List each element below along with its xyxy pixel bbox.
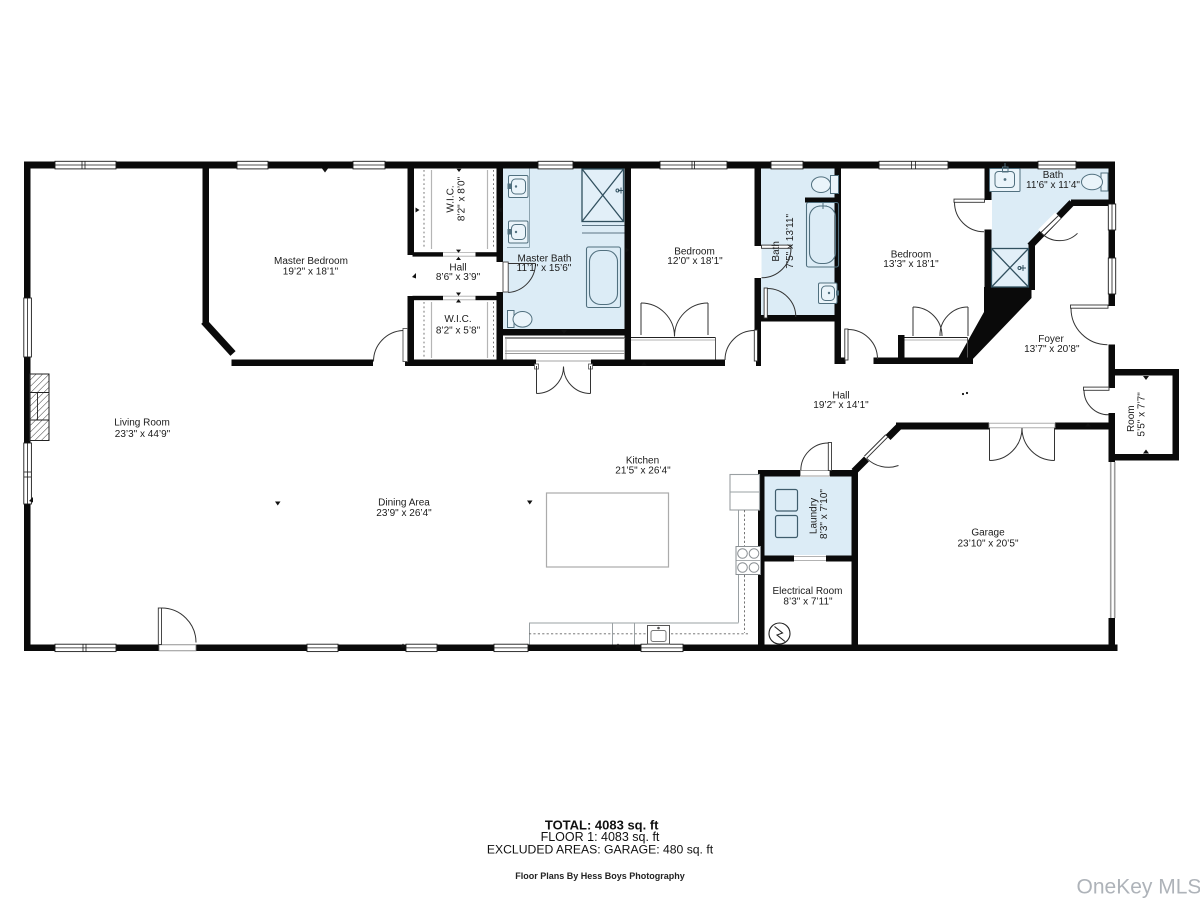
svg-text:Kitchen: Kitchen [626,455,659,466]
svg-text:EXCLUDED AREAS: GARAGE: 480 sq: EXCLUDED AREAS: GARAGE: 480 sq. ft [487,842,714,856]
svg-text:11’6" x 11’4": 11’6" x 11’4" [1026,180,1080,191]
svg-text:Floor Plans By Hess Boys Photo: Floor Plans By Hess Boys Photography [515,871,685,881]
svg-text:Living Room: Living Room [114,418,170,429]
svg-text:19’2" x 14’1": 19’2" x 14’1" [813,400,869,411]
svg-text:13’7" x 20’8": 13’7" x 20’8" [1024,344,1080,355]
svg-text:OneKey MLS: OneKey MLS [1077,876,1200,899]
svg-text:8’3" x 7’11": 8’3" x 7’11" [783,597,833,608]
svg-text:8’2" x 8’0": 8’2" x 8’0" [457,176,468,221]
svg-text:Bath: Bath [771,241,782,262]
svg-text:23’10" x 20’5": 23’10" x 20’5" [957,539,1018,550]
svg-text:W.I.C.: W.I.C. [446,185,457,212]
svg-text:Room: Room [1126,405,1137,432]
svg-text:8’2" x 5’8": 8’2" x 5’8" [436,326,481,337]
svg-text:12’0" x 18’1": 12’0" x 18’1" [667,256,723,267]
svg-text:Master Bedroom: Master Bedroom [274,256,348,267]
svg-text:11’1" x 15’6": 11’1" x 15’6" [517,263,572,274]
svg-text:23’3" x 44’9": 23’3" x 44’9" [115,429,171,440]
svg-text:7’5" x 13’11": 7’5" x 13’11" [785,213,796,268]
svg-text:8’6" x 3’9": 8’6" x 3’9" [436,272,481,283]
svg-text:Electrical Room: Electrical Room [772,586,842,597]
svg-text:Garage: Garage [971,528,1005,539]
svg-text:21’5" x 26’4": 21’5" x 26’4" [615,466,671,477]
svg-text:19’2" x 18’1": 19’2" x 18’1" [283,267,339,278]
svg-text:8’3" x 7’10": 8’3" x 7’10" [819,489,830,539]
svg-text:23’9" x 26’4": 23’9" x 26’4" [376,508,432,519]
svg-text:5’5" x 7’7": 5’5" x 7’7" [1137,392,1148,437]
svg-text:W.I.C.: W.I.C. [444,314,471,325]
svg-text:Laundry: Laundry [809,498,820,534]
svg-text:13’3" x 18’1": 13’3" x 18’1" [883,259,939,270]
